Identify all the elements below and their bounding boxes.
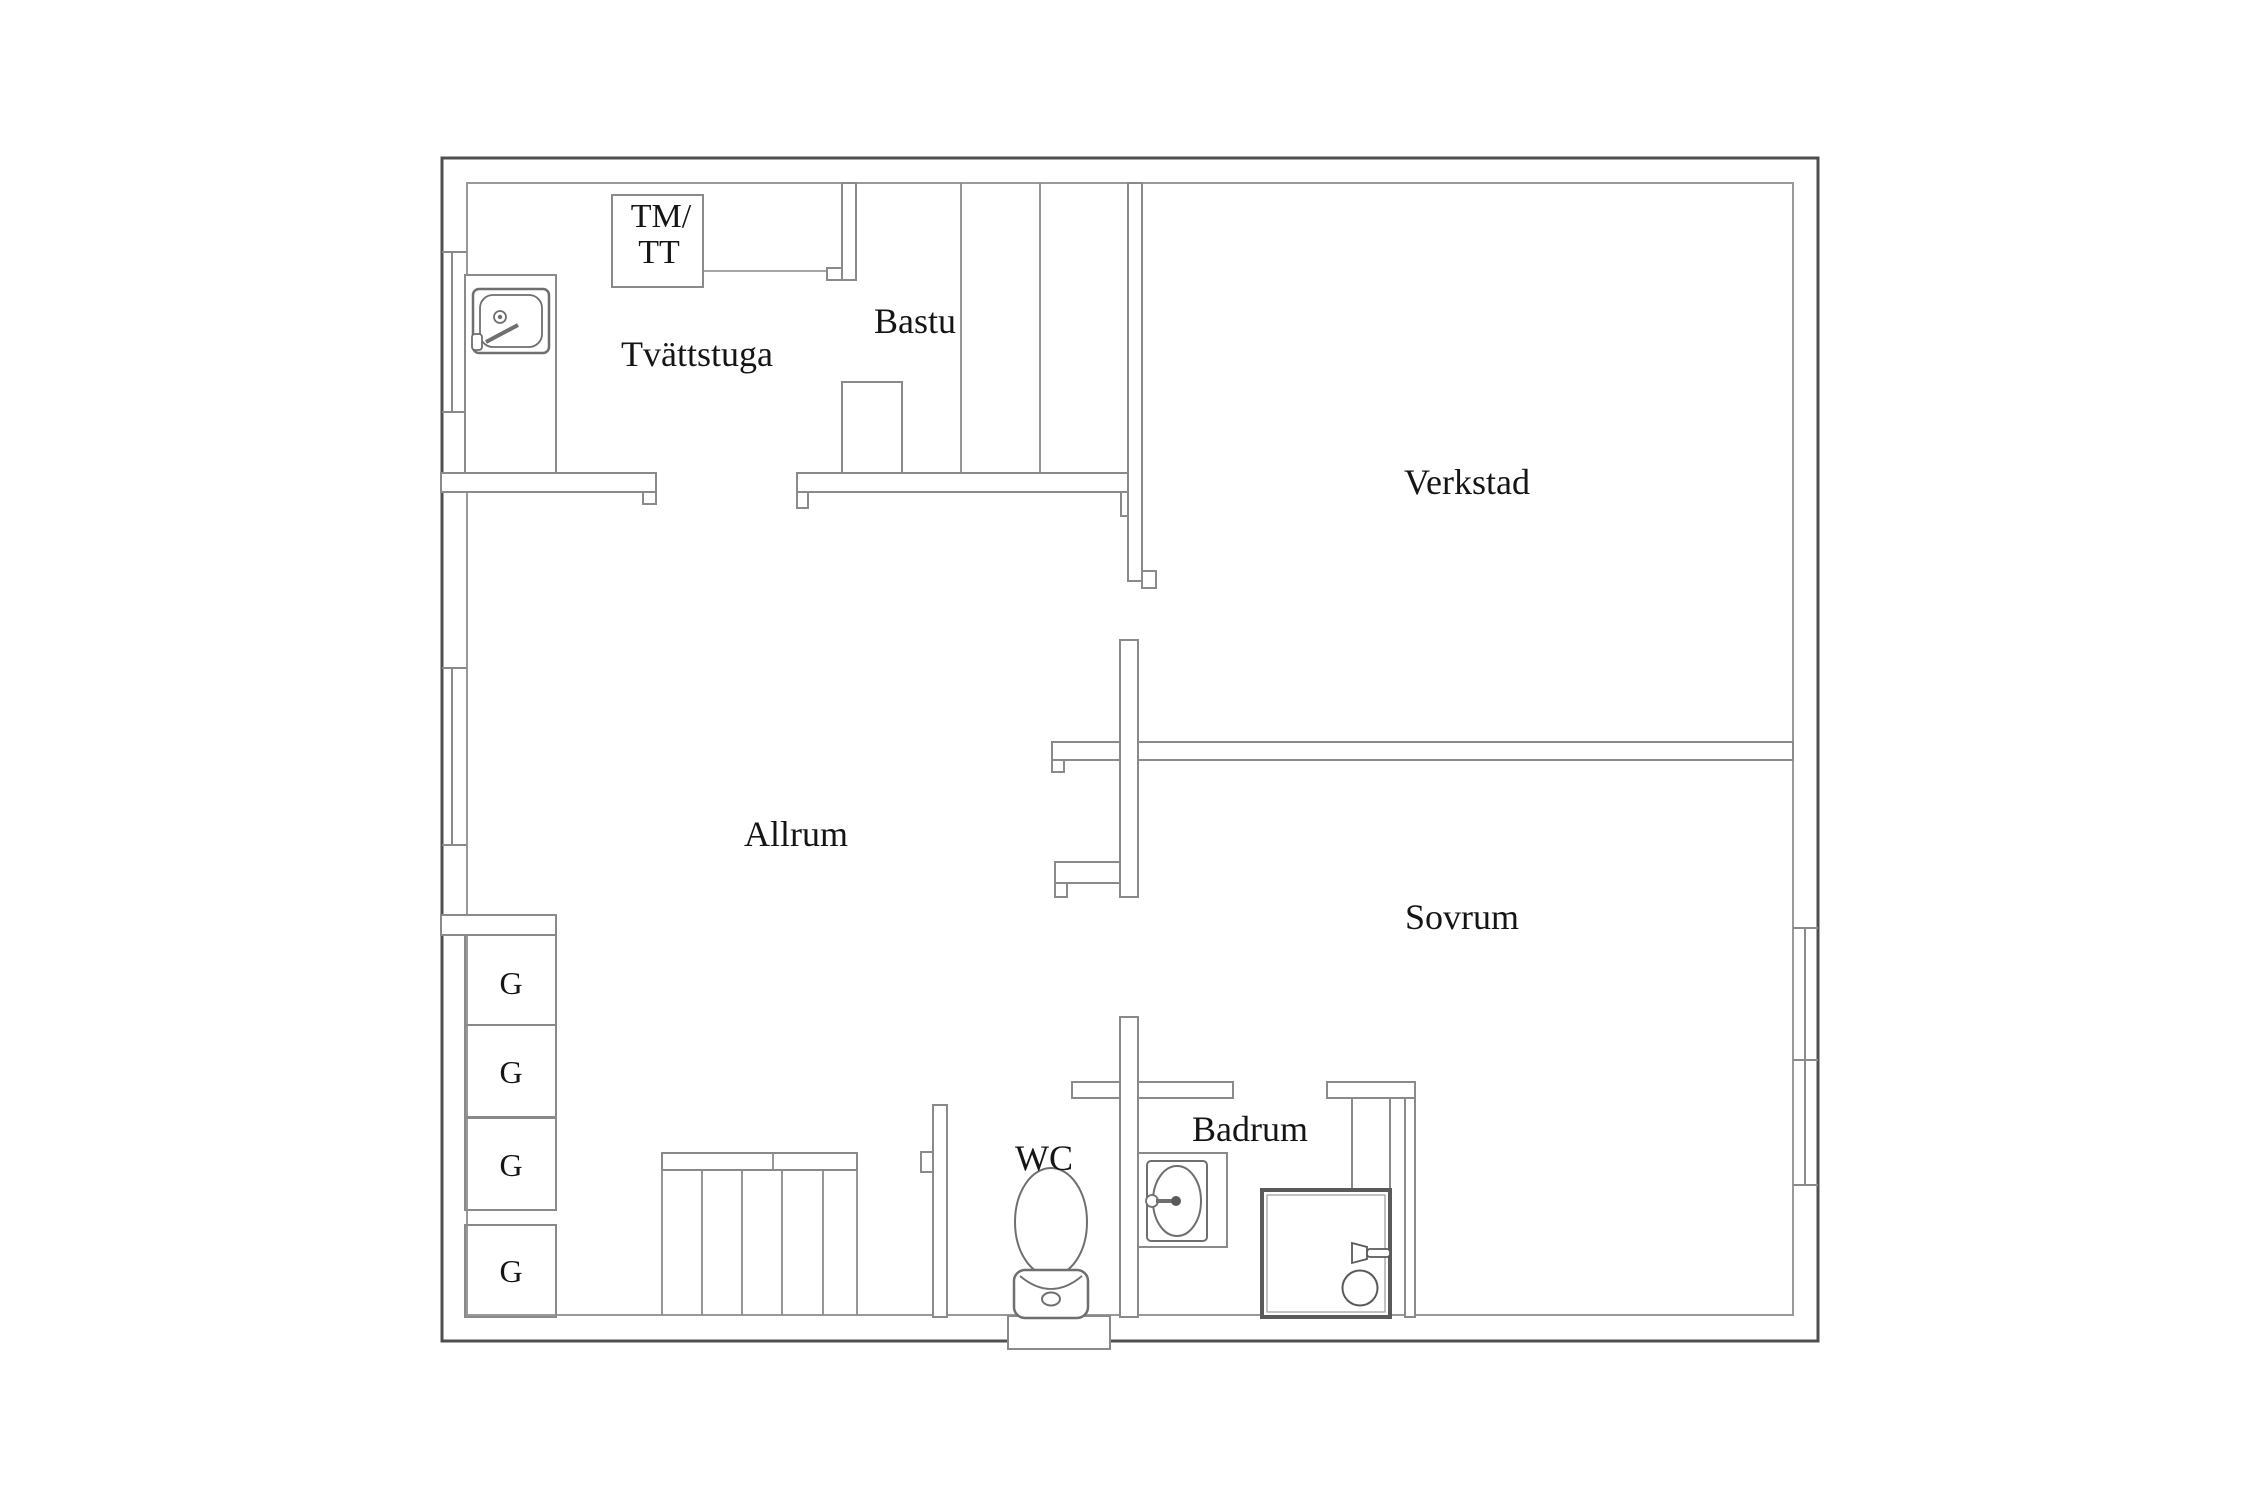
wardrobe-label-2: G (499, 1054, 522, 1090)
exterior-step (1008, 1316, 1110, 1349)
floor-plan-canvas: TM/ TT Tvättstuga Bastu Verkstad Allrum … (0, 0, 2250, 1500)
room-label-sovrum: Sovrum (1405, 897, 1519, 937)
wall-wc-north (1072, 1082, 1120, 1098)
floor-plan: TM/ TT Tvättstuga Bastu Verkstad Allrum … (0, 0, 2250, 1500)
laundry-sink-icon (472, 289, 549, 353)
washer-dryer-label-line1: TM/ (631, 198, 692, 235)
wall-badrum-north-west (1138, 1082, 1233, 1098)
wall-allrum-sovrum (1120, 640, 1138, 897)
room-label-allrum: Allrum (744, 814, 848, 854)
room-label-wc: WC (1015, 1138, 1073, 1178)
stair-landing (662, 1153, 857, 1170)
washbasin-icon (1138, 1153, 1227, 1247)
wall-tmtt-nook (842, 183, 856, 280)
wall-verkstad-west (1128, 183, 1142, 581)
laundry-area (465, 275, 556, 473)
room-label-tvattstuga: Tvättstuga (621, 334, 773, 374)
shower-drain (1343, 1271, 1378, 1306)
wall-verkstad-south (1052, 742, 1793, 760)
wardrobe-label-1: G (499, 965, 522, 1001)
room-label-verkstad: Verkstad (1404, 462, 1530, 502)
wall-tvattstuga-south (441, 473, 656, 492)
shower-head (1352, 1243, 1367, 1263)
room-label-badrum: Badrum (1192, 1109, 1308, 1149)
room-label-bastu: Bastu (874, 301, 956, 341)
wardrobe-cap (441, 915, 556, 935)
wall-bastu-south (797, 473, 1142, 492)
wardrobe-label-4: G (499, 1253, 522, 1289)
wall-badrum-east (1405, 1098, 1415, 1317)
washer-dryer-label-line2: TT (638, 234, 680, 271)
sauna-heater (842, 382, 902, 473)
wardrobe-label-3: G (499, 1147, 522, 1183)
shower-icon (1262, 1190, 1390, 1317)
toilet-icon (1014, 1168, 1088, 1318)
wall-wc-east (1120, 1017, 1138, 1317)
wall-wc-west (933, 1105, 947, 1317)
wall-badrum-north-east (1327, 1082, 1415, 1098)
